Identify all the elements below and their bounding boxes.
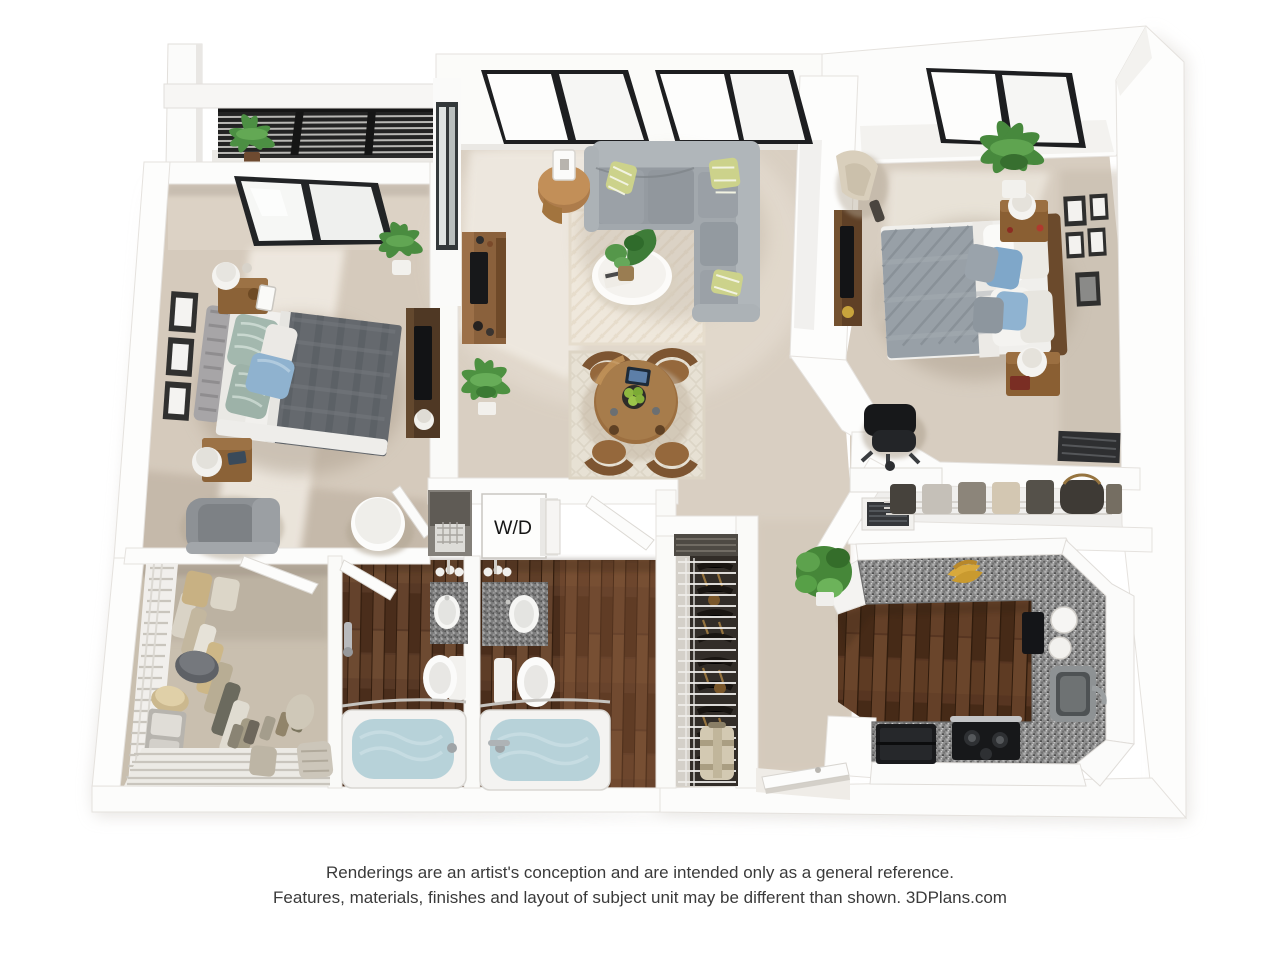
svg-text:Features, materials, finishes: Features, materials, finishes and layout…	[273, 888, 1007, 907]
svg-text:Renderings are an artist's con: Renderings are an artist's conception an…	[326, 863, 954, 882]
svg-text:W/D: W/D	[494, 517, 532, 539]
